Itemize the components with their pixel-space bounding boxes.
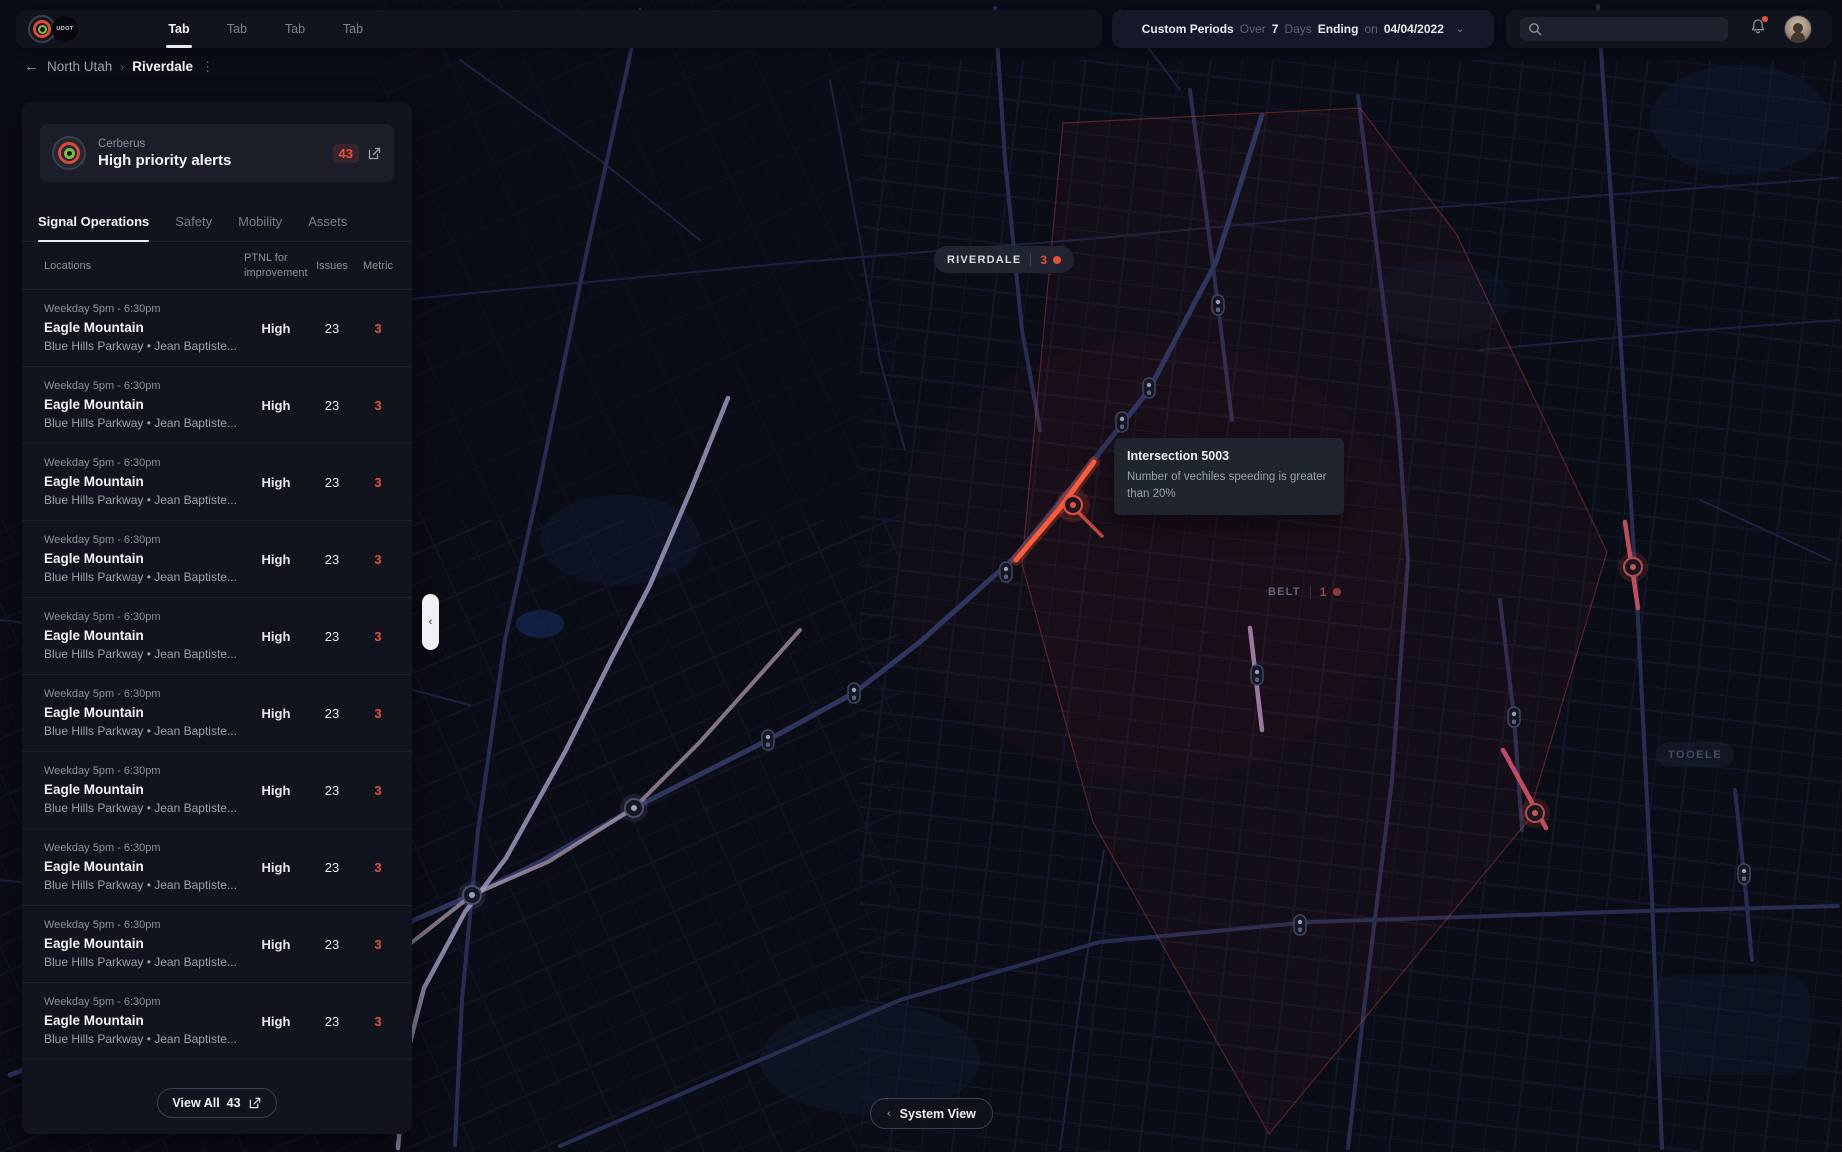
panel-footer: View All 43 bbox=[22, 1072, 412, 1134]
alert-location-name: Eagle Mountain bbox=[44, 859, 244, 874]
tab-mobility[interactable]: Mobility bbox=[238, 208, 282, 241]
search-box[interactable] bbox=[1520, 17, 1728, 41]
utility-bar bbox=[1506, 10, 1832, 48]
external-link-icon bbox=[367, 146, 382, 161]
alert-location-detail: Blue Hills Parkway • Jean Baptiste... bbox=[44, 570, 244, 584]
alert-ptnl-value: High bbox=[244, 475, 308, 490]
alert-time: Weekday 5pm - 6:30pm bbox=[44, 765, 244, 777]
external-link-icon bbox=[248, 1096, 262, 1110]
alert-row[interactable]: Weekday 5pm - 6:30pm Eagle Mountain Blue… bbox=[22, 675, 412, 752]
alert-list: Weekday 5pm - 6:30pm Eagle Mountain Blue… bbox=[22, 290, 412, 1072]
logo-group[interactable]: UDOT bbox=[28, 15, 78, 43]
intersection-marker-alert bbox=[1056, 488, 1090, 522]
collapse-chevron-icon: ‹ bbox=[429, 616, 433, 628]
alert-location: Weekday 5pm - 6:30pm Eagle Mountain Blue… bbox=[44, 611, 244, 661]
period-over-label: Over bbox=[1240, 22, 1266, 36]
district-name: TOOELE bbox=[1668, 749, 1722, 761]
alert-location-detail: Blue Hills Parkway • Jean Baptiste... bbox=[44, 493, 244, 507]
signal-marker bbox=[848, 683, 860, 703]
alert-location-detail: Blue Hills Parkway • Jean Baptiste... bbox=[44, 647, 244, 661]
view-all-count: 43 bbox=[227, 1096, 241, 1110]
signal-marker bbox=[762, 730, 774, 750]
tab-signal-operations[interactable]: Signal Operations bbox=[38, 208, 149, 241]
alert-time: Weekday 5pm - 6:30pm bbox=[44, 842, 244, 854]
signal-marker bbox=[1251, 665, 1263, 685]
district-label-tooele[interactable]: TOOELE bbox=[1656, 742, 1734, 767]
top-tabs: Tab Tab Tab Tab bbox=[150, 10, 382, 48]
column-locations: Locations bbox=[44, 260, 244, 272]
alert-metric-value: 3 bbox=[356, 860, 400, 875]
tooltip-title: Intersection 5003 bbox=[1127, 449, 1331, 463]
view-all-button[interactable]: View All 43 bbox=[157, 1088, 276, 1118]
breadcrumb-separator-icon: › bbox=[120, 60, 124, 74]
alert-row[interactable]: Weekday 5pm - 6:30pm Eagle Mountain Blue… bbox=[22, 367, 412, 444]
alert-time: Weekday 5pm - 6:30pm bbox=[44, 380, 244, 392]
view-all-label: View All bbox=[172, 1096, 219, 1110]
alert-metric-value: 3 bbox=[356, 398, 400, 413]
alert-row[interactable]: Weekday 5pm - 6:30pm Eagle Mountain Blue… bbox=[22, 752, 412, 829]
alert-location: Weekday 5pm - 6:30pm Eagle Mountain Blue… bbox=[44, 303, 244, 353]
column-metric: Metric bbox=[356, 260, 400, 272]
map-tooltip: Intersection 5003 Number of vechiles spe… bbox=[1114, 438, 1344, 515]
district-label-riverdale[interactable]: RIVERDALE 3 bbox=[934, 246, 1074, 273]
alert-location: Weekday 5pm - 6:30pm Eagle Mountain Blue… bbox=[44, 919, 244, 969]
alert-issues-value: 23 bbox=[308, 321, 356, 336]
search-input[interactable] bbox=[1542, 22, 1720, 36]
intersection-marker-alert bbox=[1618, 552, 1648, 582]
alert-metric-value: 3 bbox=[356, 783, 400, 798]
alert-location: Weekday 5pm - 6:30pm Eagle Mountain Blue… bbox=[44, 688, 244, 738]
intersection-marker-alert bbox=[1520, 798, 1550, 828]
alert-location-detail: Blue Hills Parkway • Jean Baptiste... bbox=[44, 1032, 244, 1046]
period-days-label: Days bbox=[1284, 22, 1311, 36]
top-tab-2[interactable]: Tab bbox=[208, 10, 266, 48]
breadcrumb-parent[interactable]: North Utah bbox=[47, 59, 112, 74]
panel-collapse-handle[interactable]: ‹ bbox=[422, 594, 439, 650]
signal-marker bbox=[1000, 562, 1012, 582]
alert-ptnl-value: High bbox=[244, 629, 308, 644]
alert-ptnl-value: High bbox=[244, 552, 308, 567]
alert-location-name: Eagle Mountain bbox=[44, 320, 244, 335]
alert-ptnl-value: High bbox=[244, 398, 308, 413]
alert-location: Weekday 5pm - 6:30pm Eagle Mountain Blue… bbox=[44, 842, 244, 892]
alert-issues-value: 23 bbox=[308, 475, 356, 490]
signal-marker bbox=[1508, 707, 1520, 727]
period-date-value: 04/04/2022 bbox=[1384, 22, 1444, 36]
district-alert-count: 1 bbox=[1320, 585, 1328, 599]
signal-marker bbox=[1116, 412, 1128, 432]
label-divider bbox=[1030, 253, 1031, 266]
alert-issues-value: 23 bbox=[308, 398, 356, 413]
alert-location-detail: Blue Hills Parkway • Jean Baptiste... bbox=[44, 339, 244, 353]
panel-tabs: Signal Operations Safety Mobility Assets bbox=[22, 208, 412, 242]
alerts-summary-text: Cerberus High priority alerts bbox=[98, 138, 333, 169]
alert-time: Weekday 5pm - 6:30pm bbox=[44, 996, 244, 1008]
intersection-marker bbox=[620, 794, 648, 822]
alert-location-name: Eagle Mountain bbox=[44, 782, 244, 797]
breadcrumb-current: Riverdale bbox=[132, 59, 193, 74]
alerts-panel: Cerberus High priority alerts 43 Signal … bbox=[22, 102, 412, 1134]
alert-ptnl-value: High bbox=[244, 1014, 308, 1029]
notifications-button[interactable] bbox=[1750, 18, 1766, 40]
alert-metric-value: 3 bbox=[356, 1014, 400, 1029]
alert-row[interactable]: Weekday 5pm - 6:30pm Eagle Mountain Blue… bbox=[22, 598, 412, 675]
alert-row[interactable]: Weekday 5pm - 6:30pm Eagle Mountain Blue… bbox=[22, 290, 412, 367]
district-alert-count: 3 bbox=[1040, 253, 1048, 267]
alert-location-name: Eagle Mountain bbox=[44, 705, 244, 720]
alert-ptnl-value: High bbox=[244, 937, 308, 952]
alert-row[interactable]: Weekday 5pm - 6:30pm Eagle Mountain Blue… bbox=[22, 906, 412, 983]
user-avatar[interactable] bbox=[1784, 15, 1812, 43]
alert-metric-value: 3 bbox=[356, 321, 400, 336]
alert-location-name: Eagle Mountain bbox=[44, 551, 244, 566]
top-tab-3[interactable]: Tab bbox=[266, 10, 324, 48]
column-ptnl: PTNL for improvement bbox=[244, 251, 308, 280]
alert-issues-value: 23 bbox=[308, 706, 356, 721]
alert-issues-value: 23 bbox=[308, 783, 356, 798]
app-root: RIVERDALE 3 BELT 1 TOOELE Intersection 5… bbox=[0, 0, 1842, 1152]
chevron-down-icon: ⌄ bbox=[1456, 24, 1464, 35]
alert-location-detail: Blue Hills Parkway • Jean Baptiste... bbox=[44, 878, 244, 892]
alert-dot-icon bbox=[1333, 588, 1341, 596]
table-header: Locations PTNL for improvement Issues Me… bbox=[22, 242, 412, 290]
alerts-count-badge: 43 bbox=[333, 144, 359, 163]
alert-location: Weekday 5pm - 6:30pm Eagle Mountain Blue… bbox=[44, 380, 244, 430]
alert-metric-value: 3 bbox=[356, 937, 400, 952]
breadcrumb: ← North Utah › Riverdale ⋮ bbox=[24, 58, 215, 75]
alert-time: Weekday 5pm - 6:30pm bbox=[44, 919, 244, 931]
top-tab-1[interactable]: Tab bbox=[150, 10, 208, 48]
signal-marker bbox=[1212, 295, 1224, 315]
alert-time: Weekday 5pm - 6:30pm bbox=[44, 611, 244, 623]
alert-ptnl-value: High bbox=[244, 321, 308, 336]
column-issues: Issues bbox=[308, 260, 356, 272]
alert-issues-value: 23 bbox=[308, 629, 356, 644]
kebab-menu-icon[interactable]: ⋮ bbox=[201, 59, 215, 75]
chevron-left-icon: ‹ bbox=[887, 1108, 891, 1120]
district-name: BELT bbox=[1268, 586, 1301, 598]
signal-marker bbox=[1143, 378, 1155, 398]
alert-dot-icon bbox=[1053, 256, 1061, 264]
alert-time: Weekday 5pm - 6:30pm bbox=[44, 303, 244, 315]
alert-location-name: Eagle Mountain bbox=[44, 474, 244, 489]
signal-marker bbox=[1738, 864, 1750, 884]
alert-metric-value: 3 bbox=[356, 706, 400, 721]
signal-marker bbox=[1294, 915, 1306, 935]
alert-time: Weekday 5pm - 6:30pm bbox=[44, 457, 244, 469]
alert-ptnl-value: High bbox=[244, 706, 308, 721]
alert-row[interactable]: Weekday 5pm - 6:30pm Eagle Mountain Blue… bbox=[22, 983, 412, 1060]
label-divider bbox=[1310, 586, 1311, 599]
alert-location: Weekday 5pm - 6:30pm Eagle Mountain Blue… bbox=[44, 534, 244, 584]
alert-location-name: Eagle Mountain bbox=[44, 1013, 244, 1028]
alert-location: Weekday 5pm - 6:30pm Eagle Mountain Blue… bbox=[44, 996, 244, 1046]
alerts-source: Cerberus bbox=[98, 138, 333, 150]
period-on-label: on bbox=[1364, 22, 1377, 36]
alert-ptnl-value: High bbox=[244, 783, 308, 798]
system-view-label: System View bbox=[900, 1107, 976, 1121]
notification-dot bbox=[1762, 16, 1768, 22]
alert-location-detail: Blue Hills Parkway • Jean Baptiste... bbox=[44, 416, 244, 430]
open-alerts-button[interactable] bbox=[367, 146, 382, 161]
alert-issues-value: 23 bbox=[308, 552, 356, 567]
search-icon bbox=[1528, 22, 1542, 36]
alert-location-detail: Blue Hills Parkway • Jean Baptiste... bbox=[44, 724, 244, 738]
alert-metric-value: 3 bbox=[356, 475, 400, 490]
intersection-marker bbox=[458, 881, 486, 909]
alert-ptnl-value: High bbox=[244, 860, 308, 875]
alert-row[interactable]: Weekday 5pm - 6:30pm Eagle Mountain Blue… bbox=[22, 829, 412, 906]
district-label-belt[interactable]: BELT 1 bbox=[1262, 580, 1347, 604]
period-title: Custom Periods bbox=[1142, 22, 1234, 36]
alert-location-name: Eagle Mountain bbox=[44, 628, 244, 643]
tooltip-description: Number of vechiles speeding is greater t… bbox=[1127, 469, 1331, 502]
alert-issues-value: 23 bbox=[308, 937, 356, 952]
alert-metric-value: 3 bbox=[356, 629, 400, 644]
system-view-button[interactable]: ‹ System View bbox=[870, 1098, 993, 1129]
back-arrow-icon[interactable]: ← bbox=[24, 58, 39, 75]
alert-location-name: Eagle Mountain bbox=[44, 397, 244, 412]
alert-location-detail: Blue Hills Parkway • Jean Baptiste... bbox=[44, 801, 244, 815]
alert-location-name: Eagle Mountain bbox=[44, 936, 244, 951]
district-name: RIVERDALE bbox=[947, 254, 1021, 266]
alerts-summary-card[interactable]: Cerberus High priority alerts 43 bbox=[40, 124, 394, 182]
alerts-title: High priority alerts bbox=[98, 152, 333, 169]
alert-metric-value: 3 bbox=[356, 552, 400, 567]
alert-location: Weekday 5pm - 6:30pm Eagle Mountain Blue… bbox=[44, 765, 244, 815]
alert-time: Weekday 5pm - 6:30pm bbox=[44, 534, 244, 546]
alert-row[interactable]: Weekday 5pm - 6:30pm Eagle Mountain Blue… bbox=[22, 444, 412, 521]
udot-logo-icon: UDOT bbox=[52, 16, 78, 42]
top-tab-4[interactable]: Tab bbox=[324, 10, 382, 48]
period-selector[interactable]: Custom Periods Over 7 Days Ending on 04/… bbox=[1112, 10, 1494, 48]
top-nav-bar: UDOT Tab Tab Tab Tab bbox=[16, 10, 1102, 48]
cerberus-logo-icon bbox=[52, 136, 86, 170]
alert-issues-value: 23 bbox=[308, 1014, 356, 1029]
alert-row[interactable]: Weekday 5pm - 6:30pm Eagle Mountain Blue… bbox=[22, 521, 412, 598]
alert-location-detail: Blue Hills Parkway • Jean Baptiste... bbox=[44, 955, 244, 969]
tab-safety[interactable]: Safety bbox=[175, 208, 212, 241]
period-ending-label: Ending bbox=[1318, 22, 1359, 36]
alert-location: Weekday 5pm - 6:30pm Eagle Mountain Blue… bbox=[44, 457, 244, 507]
tab-assets[interactable]: Assets bbox=[308, 208, 347, 241]
alert-time: Weekday 5pm - 6:30pm bbox=[44, 688, 244, 700]
alert-issues-value: 23 bbox=[308, 860, 356, 875]
period-days-value: 7 bbox=[1272, 22, 1279, 36]
